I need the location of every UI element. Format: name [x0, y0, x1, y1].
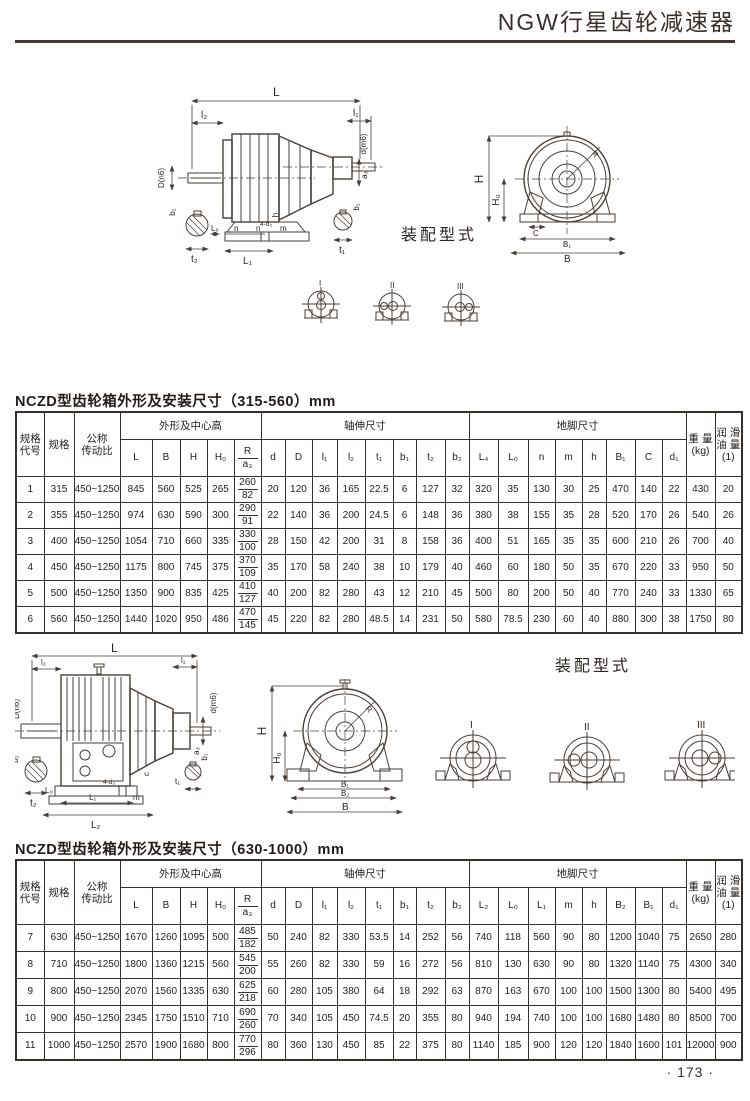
data-cell: 355: [416, 1006, 445, 1033]
data-cell: 59: [365, 952, 393, 979]
data-cell: 740: [469, 925, 498, 952]
data-cell: 56: [445, 925, 469, 952]
assembly-type-icon: I: [436, 720, 510, 788]
header-cell: B: [152, 888, 180, 925]
data-cell: 520: [606, 503, 635, 529]
header-oil: 润 滑 油 量 (1): [715, 860, 742, 925]
header-cell: D: [285, 888, 312, 925]
dim-label: C: [533, 229, 539, 238]
cell-ratio: 450~1250: [74, 952, 120, 979]
header-cell: D: [285, 440, 312, 477]
data-cell: 53.5: [365, 925, 393, 952]
cell-spec: 560: [44, 607, 74, 634]
data-cell: 1480: [635, 1006, 662, 1033]
data-cell: 80: [445, 1006, 469, 1033]
dim-label: m: [280, 224, 287, 233]
data-cell: 90: [555, 925, 582, 952]
data-cell: 300: [207, 503, 234, 529]
dim-label: b₁: [200, 753, 209, 760]
data-cell: 20: [261, 477, 285, 503]
data-cell: 105: [312, 1006, 337, 1033]
svg-text:I: I: [319, 279, 321, 288]
data-cell: 300: [635, 607, 662, 634]
dim-label: l₁: [353, 108, 359, 119]
data-cell: 36: [312, 503, 337, 529]
dim-label: d(m6): [209, 692, 218, 713]
data-cell: 320: [469, 477, 498, 503]
cell-r: 470145: [234, 607, 261, 634]
data-cell: 580: [469, 607, 498, 634]
header-outline-group: 外形及中心高: [120, 860, 261, 888]
cell-oil: 40: [715, 529, 742, 555]
cell-spec: 900: [44, 1006, 74, 1033]
data-cell: 1750: [152, 1006, 180, 1033]
dim-label: H₀: [491, 194, 502, 205]
header-cell: l₁: [312, 440, 337, 477]
data-cell: 40: [582, 607, 606, 634]
table-row: 8710450~12501800136012155605452005526082…: [16, 952, 742, 979]
data-cell: 60: [261, 979, 285, 1006]
dim-label: B: [564, 254, 571, 265]
header-spec: 规格: [44, 860, 74, 925]
data-cell: 85: [365, 1033, 393, 1061]
data-cell: 80: [261, 1033, 285, 1061]
data-cell: 38: [662, 607, 686, 634]
data-cell: 974: [120, 503, 152, 529]
cell-oil: 80: [715, 607, 742, 634]
data-cell: 38: [498, 503, 528, 529]
dim-label: m: [133, 793, 140, 802]
data-cell: 75: [662, 925, 686, 952]
data-cell: 120: [582, 1033, 606, 1061]
cell-code: 9: [16, 979, 44, 1006]
data-cell: 1360: [152, 952, 180, 979]
data-cell: 240: [635, 581, 662, 607]
data-cell: 335: [207, 529, 234, 555]
data-cell: 280: [337, 607, 365, 634]
data-cell: 835: [180, 581, 207, 607]
data-cell: 63: [445, 979, 469, 1006]
header-shaft-group: 轴伸尺寸: [261, 412, 469, 440]
table-row: 111000450~125025701900168080077029680360…: [16, 1033, 742, 1061]
data-cell: 740: [528, 1006, 555, 1033]
header-cell: C: [635, 440, 662, 477]
header-cell: d: [261, 888, 285, 925]
header-cell: H: [180, 440, 207, 477]
data-cell: 130: [498, 952, 528, 979]
cell-r: 545200: [234, 952, 261, 979]
table-title-630-1000: NCZD型齿轮箱外形及安装尺寸（630-1000）mm: [15, 838, 344, 859]
table-row: 9800450~12502070156013356306252186028010…: [16, 979, 742, 1006]
data-cell: 231: [416, 607, 445, 634]
data-cell: 210: [635, 529, 662, 555]
data-cell: 35: [555, 529, 582, 555]
assembly-type-icon: I: [302, 279, 340, 323]
cell-oil: 65: [715, 581, 742, 607]
header-cell: b₁: [393, 440, 416, 477]
dim-label: t₁: [175, 777, 180, 786]
svg-text:I: I: [470, 720, 473, 731]
data-cell: 900: [152, 581, 180, 607]
data-cell: 220: [285, 607, 312, 634]
data-cell: 1200: [606, 925, 635, 952]
data-cell: 127: [416, 477, 445, 503]
cell-weight: 1330: [686, 581, 715, 607]
data-cell: 35: [261, 555, 285, 581]
data-cell: 36: [312, 477, 337, 503]
data-cell: 1175: [120, 555, 152, 581]
data-cell: 100: [555, 1006, 582, 1033]
dim-label: 4-d₃: [260, 221, 272, 228]
cell-ratio: 450~1250: [74, 581, 120, 607]
data-cell: 500: [207, 925, 234, 952]
cell-weight: 2650: [686, 925, 715, 952]
header-cell: H: [180, 888, 207, 925]
data-cell: 130: [528, 477, 555, 503]
table-row: 1315450~12508455605252652608220120361652…: [16, 477, 742, 503]
cell-ratio: 450~1250: [74, 1033, 120, 1061]
assembly-type-icon: III: [442, 282, 480, 326]
dim-label: D(n6): [157, 168, 166, 188]
data-cell: 1140: [469, 1033, 498, 1061]
cell-weight: 5400: [686, 979, 715, 1006]
cell-r: 410127: [234, 581, 261, 607]
data-cell: 100: [555, 979, 582, 1006]
data-cell: 2570: [120, 1033, 152, 1061]
data-cell: 1560: [152, 979, 180, 1006]
data-cell: 40: [445, 555, 469, 581]
assembly-type-icon: II: [373, 281, 411, 325]
header-cell-r: Ra₃: [234, 440, 261, 477]
title-rule: [15, 40, 735, 43]
data-cell: 31: [365, 529, 393, 555]
cell-code: 1: [16, 477, 44, 503]
dim-label: H: [472, 175, 486, 184]
header-weight: 重 量 (kg): [686, 412, 715, 477]
data-cell: 74.5: [365, 1006, 393, 1033]
header-code: 规格 代号: [16, 860, 44, 925]
data-cell: 120: [555, 1033, 582, 1061]
data-cell: 36: [445, 503, 469, 529]
cell-weight: 1750: [686, 607, 715, 634]
data-cell: 800: [152, 555, 180, 581]
data-cell: 80: [582, 952, 606, 979]
data-cell: 210: [416, 581, 445, 607]
header-cell: t₂: [416, 888, 445, 925]
data-cell: 14: [393, 925, 416, 952]
data-cell: 58: [312, 555, 337, 581]
data-cell: 1680: [606, 1006, 635, 1033]
data-cell: 600: [606, 529, 635, 555]
page-number: · 173 ·: [667, 1064, 714, 1080]
cell-r: 26082: [234, 477, 261, 503]
data-cell: 75: [662, 952, 686, 979]
cell-ratio: 450~1250: [74, 607, 120, 634]
data-cell: 360: [285, 1033, 312, 1061]
data-cell: 179: [416, 555, 445, 581]
header-cell: m: [555, 888, 582, 925]
data-cell: 770: [606, 581, 635, 607]
data-cell: 194: [498, 1006, 528, 1033]
dim-label: a₃: [360, 171, 369, 179]
data-cell: 16: [393, 952, 416, 979]
data-cell: 55: [261, 952, 285, 979]
data-cell: 1054: [120, 529, 152, 555]
data-cell: 30: [555, 477, 582, 503]
data-cell: 50: [445, 607, 469, 634]
data-cell: 340: [285, 1006, 312, 1033]
header-cell: t₁: [365, 888, 393, 925]
header-foot-group: 地脚尺寸: [469, 860, 686, 888]
data-cell: 33: [662, 581, 686, 607]
header-ratio: 公称 传动比: [74, 860, 120, 925]
catalog-page: NGW行星齿轮减速器 L: [0, 0, 750, 1101]
data-cell: 140: [285, 503, 312, 529]
header-cell: t₁: [365, 440, 393, 477]
data-cell: 20: [393, 1006, 416, 1033]
data-cell: 148: [416, 503, 445, 529]
data-cell: 1900: [152, 1033, 180, 1061]
data-cell: 80: [498, 581, 528, 607]
data-cell: 845: [120, 477, 152, 503]
dim-label: D(n6): [15, 699, 21, 719]
data-cell: 130: [312, 1033, 337, 1061]
data-cell: 80: [445, 1033, 469, 1061]
page-title: NGW行星齿轮减速器: [498, 3, 735, 37]
data-cell: 163: [498, 979, 528, 1006]
cell-spec: 1000: [44, 1033, 74, 1061]
header-cell: t₂: [416, 440, 445, 477]
header-cell: h: [582, 888, 606, 925]
data-cell: 330: [337, 952, 365, 979]
data-cell: 155: [528, 503, 555, 529]
data-cell: 64: [365, 979, 393, 1006]
data-cell: 100: [582, 979, 606, 1006]
dim-label: t₁: [339, 245, 346, 256]
data-cell: 38: [365, 555, 393, 581]
data-cell: 26: [662, 503, 686, 529]
cell-oil: 495: [715, 979, 742, 1006]
table-row: 2355450~12509746305903002909122140362002…: [16, 503, 742, 529]
data-cell: 2070: [120, 979, 152, 1006]
data-cell: 560: [528, 925, 555, 952]
assembly-type-label: 装配型式: [401, 226, 477, 244]
data-cell: 560: [207, 952, 234, 979]
cell-code: 6: [16, 607, 44, 634]
data-cell: 78.5: [498, 607, 528, 634]
dim-label: b₁: [352, 203, 361, 210]
cell-r: 690260: [234, 1006, 261, 1033]
header-cell: n: [528, 440, 555, 477]
dim-label: H₀: [272, 752, 283, 763]
data-cell: 80: [662, 1006, 686, 1033]
data-cell: 220: [635, 555, 662, 581]
header-cell: L₄: [469, 440, 498, 477]
data-cell: 1215: [180, 952, 207, 979]
dim-label: H: [255, 727, 269, 736]
header-cell: b₂: [445, 440, 469, 477]
assembly-type-icon: III: [665, 720, 735, 788]
dim-label: L: [273, 85, 280, 99]
table-row: 10900450~1250234517501510710690260703401…: [16, 1006, 742, 1033]
data-cell: 260: [285, 952, 312, 979]
data-cell: 200: [285, 581, 312, 607]
data-cell: 450: [337, 1033, 365, 1061]
cell-weight: 430: [686, 477, 715, 503]
table-title-315-560: NCZD型齿轮箱外形及安装尺寸（315-560）mm: [15, 390, 336, 411]
header-cell: b₂: [445, 888, 469, 925]
header-cell: L₁: [528, 888, 555, 925]
header-spec: 规格: [44, 412, 74, 477]
dim-label: L₁: [243, 256, 253, 267]
table-row: 5500450~12501350900835425410127402008228…: [16, 581, 742, 607]
cell-code: 2: [16, 503, 44, 529]
data-cell: 1670: [120, 925, 152, 952]
data-cell: 1350: [120, 581, 152, 607]
data-cell: 1840: [606, 1033, 635, 1061]
header-cell: B: [152, 440, 180, 477]
data-cell: 170: [635, 503, 662, 529]
header-ratio: 公称 传动比: [74, 412, 120, 477]
dim-label: b₂: [15, 755, 20, 763]
data-cell: 810: [469, 952, 498, 979]
dim-label: B₁: [563, 240, 571, 249]
table-row: 4450450~12501175800745375370109351705824…: [16, 555, 742, 581]
cell-spec: 800: [44, 979, 74, 1006]
data-cell: 2345: [120, 1006, 152, 1033]
cell-weight: 700: [686, 529, 715, 555]
header-cell: L₀: [498, 888, 528, 925]
data-cell: 82: [312, 581, 337, 607]
cell-r: 330100: [234, 529, 261, 555]
cell-weight: 950: [686, 555, 715, 581]
data-cell: 35: [582, 555, 606, 581]
data-cell: 200: [337, 503, 365, 529]
data-cell: 170: [285, 555, 312, 581]
data-cell: 200: [528, 581, 555, 607]
data-cell: 670: [528, 979, 555, 1006]
dim-label: t₂: [191, 254, 198, 265]
cell-weight: 4300: [686, 952, 715, 979]
header-cell: H₀: [207, 888, 234, 925]
header-cell-r: Ra₃: [234, 888, 261, 925]
cell-code: 4: [16, 555, 44, 581]
cell-spec: 710: [44, 952, 74, 979]
data-cell: 42: [312, 529, 337, 555]
data-cell: 165: [337, 477, 365, 503]
data-cell: 630: [528, 952, 555, 979]
dim-label: R: [590, 149, 601, 160]
svg-text:III: III: [697, 720, 705, 731]
cell-oil: 20: [715, 477, 742, 503]
cell-spec: 315: [44, 477, 74, 503]
dim-label: c: [142, 772, 151, 776]
cell-spec: 500: [44, 581, 74, 607]
cell-r: 770296: [234, 1033, 261, 1061]
data-cell: 40: [261, 581, 285, 607]
data-cell: 1600: [635, 1033, 662, 1061]
dim-label: d(m6): [359, 133, 368, 154]
data-cell: 330: [337, 925, 365, 952]
data-cell: 24.5: [365, 503, 393, 529]
data-cell: 525: [180, 477, 207, 503]
data-cell: 80: [662, 979, 686, 1006]
data-cell: 1020: [152, 607, 180, 634]
data-cell: 33: [662, 555, 686, 581]
data-cell: 1260: [152, 925, 180, 952]
dim-label: b₂: [168, 208, 177, 216]
data-cell: 48.5: [365, 607, 393, 634]
cell-oil: 900: [715, 1033, 742, 1061]
dim-label: 4-d₃: [103, 779, 115, 786]
data-cell: 1680: [180, 1033, 207, 1061]
data-cell: 1140: [635, 952, 662, 979]
data-cell: 375: [207, 555, 234, 581]
data-cell: 375: [416, 1033, 445, 1061]
svg-text:II: II: [584, 722, 590, 733]
cell-code: 5: [16, 581, 44, 607]
cell-oil: 26: [715, 503, 742, 529]
data-cell: 1500: [606, 979, 635, 1006]
data-cell: 800: [207, 1033, 234, 1061]
dim-label: L: [111, 643, 118, 655]
data-cell: 14: [393, 607, 416, 634]
data-cell: 140: [635, 477, 662, 503]
cell-weight: 8500: [686, 1006, 715, 1033]
data-cell: 36: [445, 529, 469, 555]
cell-r: 29091: [234, 503, 261, 529]
data-cell: 150: [285, 529, 312, 555]
data-cell: 630: [152, 503, 180, 529]
table-row: 6560450~12501440102095048647014545220822…: [16, 607, 742, 634]
outline-drawing-630-1000: L l₂ l₁ d(m6) a₃ D(n6) t₂ b₂ t₁ b₁ L₀ L₁…: [15, 643, 735, 843]
data-cell: 6: [393, 477, 416, 503]
header-outline-group: 外形及中心高: [120, 412, 261, 440]
header-cell: L₂: [469, 888, 498, 925]
data-cell: 18: [393, 979, 416, 1006]
cell-spec: 450: [44, 555, 74, 581]
cell-oil: 50: [715, 555, 742, 581]
header-cell: l₂: [337, 888, 365, 925]
data-cell: 500: [469, 581, 498, 607]
cell-ratio: 450~1250: [74, 477, 120, 503]
cell-spec: 400: [44, 529, 74, 555]
svg-text:II: II: [390, 281, 394, 290]
table-row: 7630450~12501670126010955004851825024082…: [16, 925, 742, 952]
header-cell: d₁: [662, 440, 686, 477]
data-cell: 1320: [606, 952, 635, 979]
data-cell: 272: [416, 952, 445, 979]
data-cell: 50: [555, 555, 582, 581]
dim-label: l₂: [41, 658, 46, 667]
data-cell: 35: [555, 503, 582, 529]
header-cell: L: [120, 888, 152, 925]
data-cell: 710: [207, 1006, 234, 1033]
data-cell: 82: [312, 952, 337, 979]
data-cell: 710: [152, 529, 180, 555]
dim-label: L₂: [91, 820, 101, 831]
data-cell: 60: [555, 607, 582, 634]
cell-ratio: 450~1250: [74, 555, 120, 581]
data-cell: 60: [498, 555, 528, 581]
data-cell: 1510: [180, 1006, 207, 1033]
data-cell: 590: [180, 503, 207, 529]
data-cell: 950: [180, 607, 207, 634]
header-cell: m: [555, 440, 582, 477]
dimension-table-630-1000: 规格 代号 规格 公称 传动比 外形及中心高 轴伸尺寸 地脚尺寸 重 量 (kg…: [15, 859, 743, 1061]
data-cell: 28: [582, 503, 606, 529]
header-cell: b₁: [393, 888, 416, 925]
